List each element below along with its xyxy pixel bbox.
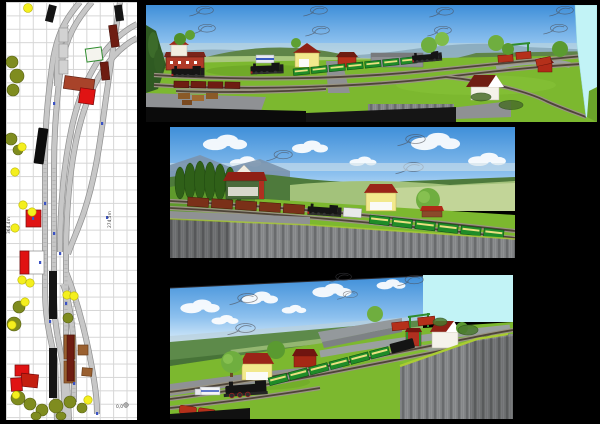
plan-platforms-top <box>59 28 68 74</box>
v3-yellow-house <box>240 353 274 380</box>
length-label-left: 364,4m <box>6 217 12 234</box>
v2-yellow-house <box>364 184 398 211</box>
v2-red-shed <box>420 206 444 217</box>
3d-view-overview[interactable] <box>146 5 597 122</box>
track-plan-view[interactable]: 364,4m 274,5m 0,0 <box>6 2 137 420</box>
compass-icon <box>123 402 129 408</box>
v3-red-barn <box>292 349 318 367</box>
3d-view-corner[interactable] <box>170 272 513 419</box>
v1-white-blue-shed <box>256 55 274 63</box>
plan-flat-wagon <box>85 47 103 62</box>
datum-label: 0,0 <box>116 404 123 410</box>
3d-view-station[interactable] <box>170 127 515 265</box>
length-label-right: 274,5m <box>107 211 113 228</box>
workspace: 364,4m 274,5m 0,0 <box>0 0 600 424</box>
